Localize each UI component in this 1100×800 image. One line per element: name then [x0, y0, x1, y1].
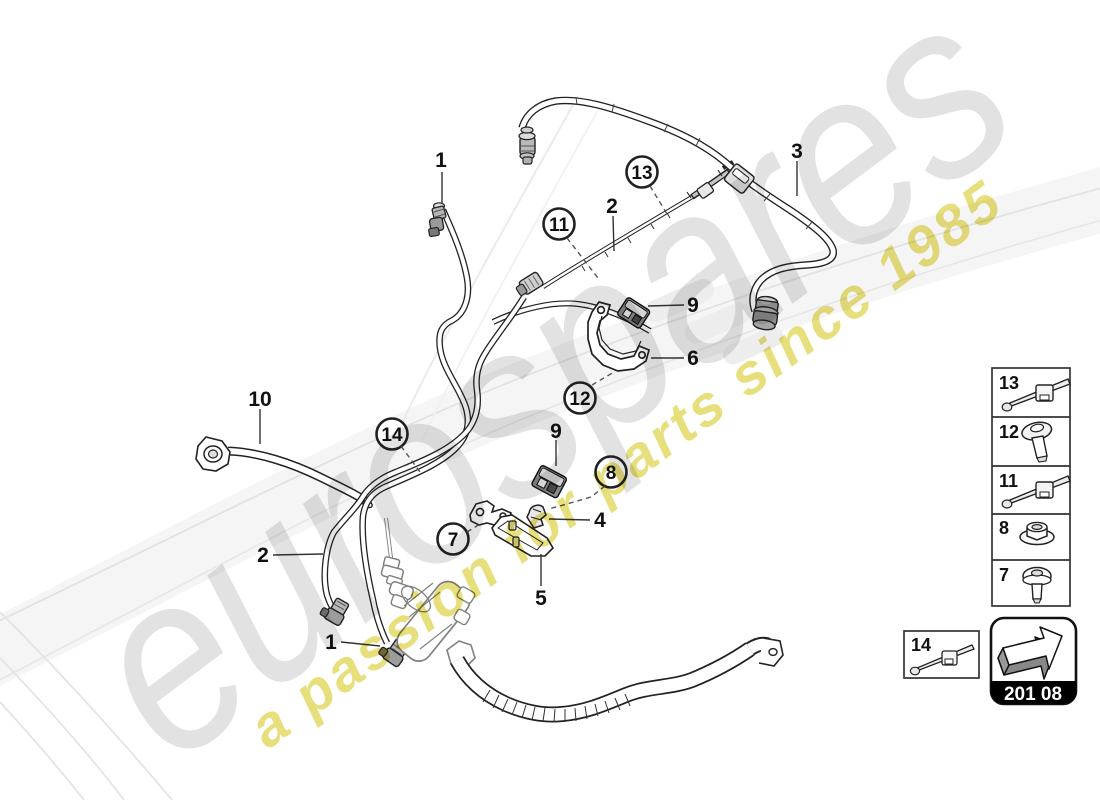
- svg-text:11: 11: [999, 471, 1018, 491]
- svg-text:1: 1: [435, 149, 447, 172]
- svg-text:5: 5: [535, 587, 547, 610]
- svg-text:10: 10: [248, 388, 271, 411]
- svg-text:13: 13: [999, 373, 1019, 393]
- svg-text:12: 12: [999, 422, 1019, 442]
- svg-text:14: 14: [911, 635, 931, 655]
- svg-text:8: 8: [999, 518, 1009, 538]
- svg-text:201 08: 201 08: [1004, 684, 1062, 705]
- svg-text:7: 7: [999, 565, 1009, 585]
